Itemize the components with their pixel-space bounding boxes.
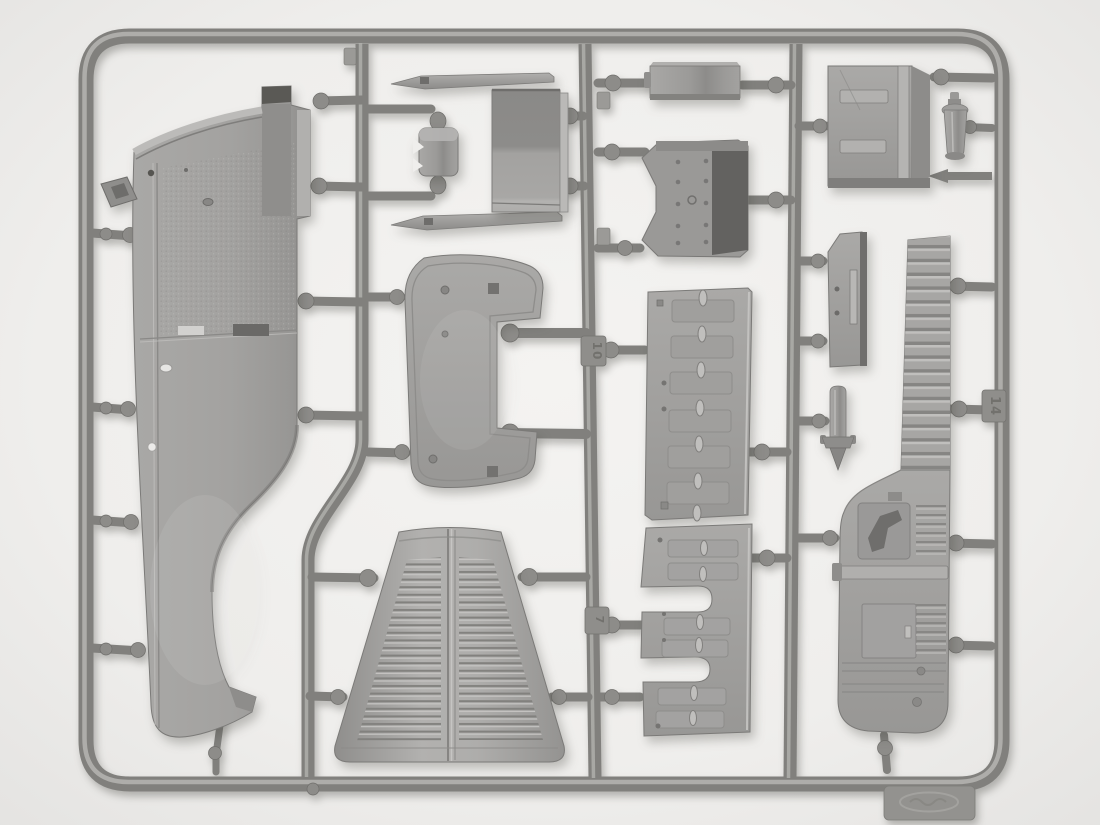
part-mounting-plate	[828, 232, 867, 367]
mold-number-14: 14	[987, 396, 1002, 416]
part-cab-rear-panel	[828, 66, 930, 188]
part-stowage-box	[644, 62, 740, 100]
side-slats	[916, 505, 946, 557]
rear-panel-strip	[840, 90, 888, 103]
part-notched-side-panel	[641, 524, 752, 736]
mold-number-10: 10	[590, 342, 604, 361]
side-slats	[916, 604, 946, 658]
seam-light-block	[178, 326, 204, 335]
runner-right	[789, 44, 797, 778]
rear-edge-strip	[297, 110, 310, 216]
firewall-dark-face	[712, 141, 748, 255]
rear-panel-strip	[840, 140, 886, 153]
locating-hole	[160, 364, 172, 372]
sprue-photo-canvas: 10 7 14	[0, 0, 1100, 825]
spear-stub-bar	[944, 172, 992, 180]
plate-slot	[850, 270, 857, 324]
part-firewall-panel	[642, 140, 748, 257]
shutter-slats	[901, 236, 950, 470]
part-bracket-box	[413, 128, 458, 176]
seam-dark-block	[233, 324, 269, 336]
part-seat-cushion	[492, 90, 568, 212]
seat-side-wall	[560, 93, 568, 212]
rear-pillar-cap	[262, 86, 291, 104]
recess-plates	[656, 540, 738, 728]
mold-number-7: 7	[593, 616, 606, 625]
photo-model-kit-sprue: 10 7 14	[0, 0, 1100, 825]
rear-panel-ridge	[898, 66, 909, 186]
divider-rail	[836, 566, 948, 579]
rear-pillar	[262, 104, 291, 216]
gate-mark-dot	[148, 443, 156, 451]
part-hinged-side-panel	[645, 288, 752, 521]
brand-tab	[884, 786, 975, 820]
